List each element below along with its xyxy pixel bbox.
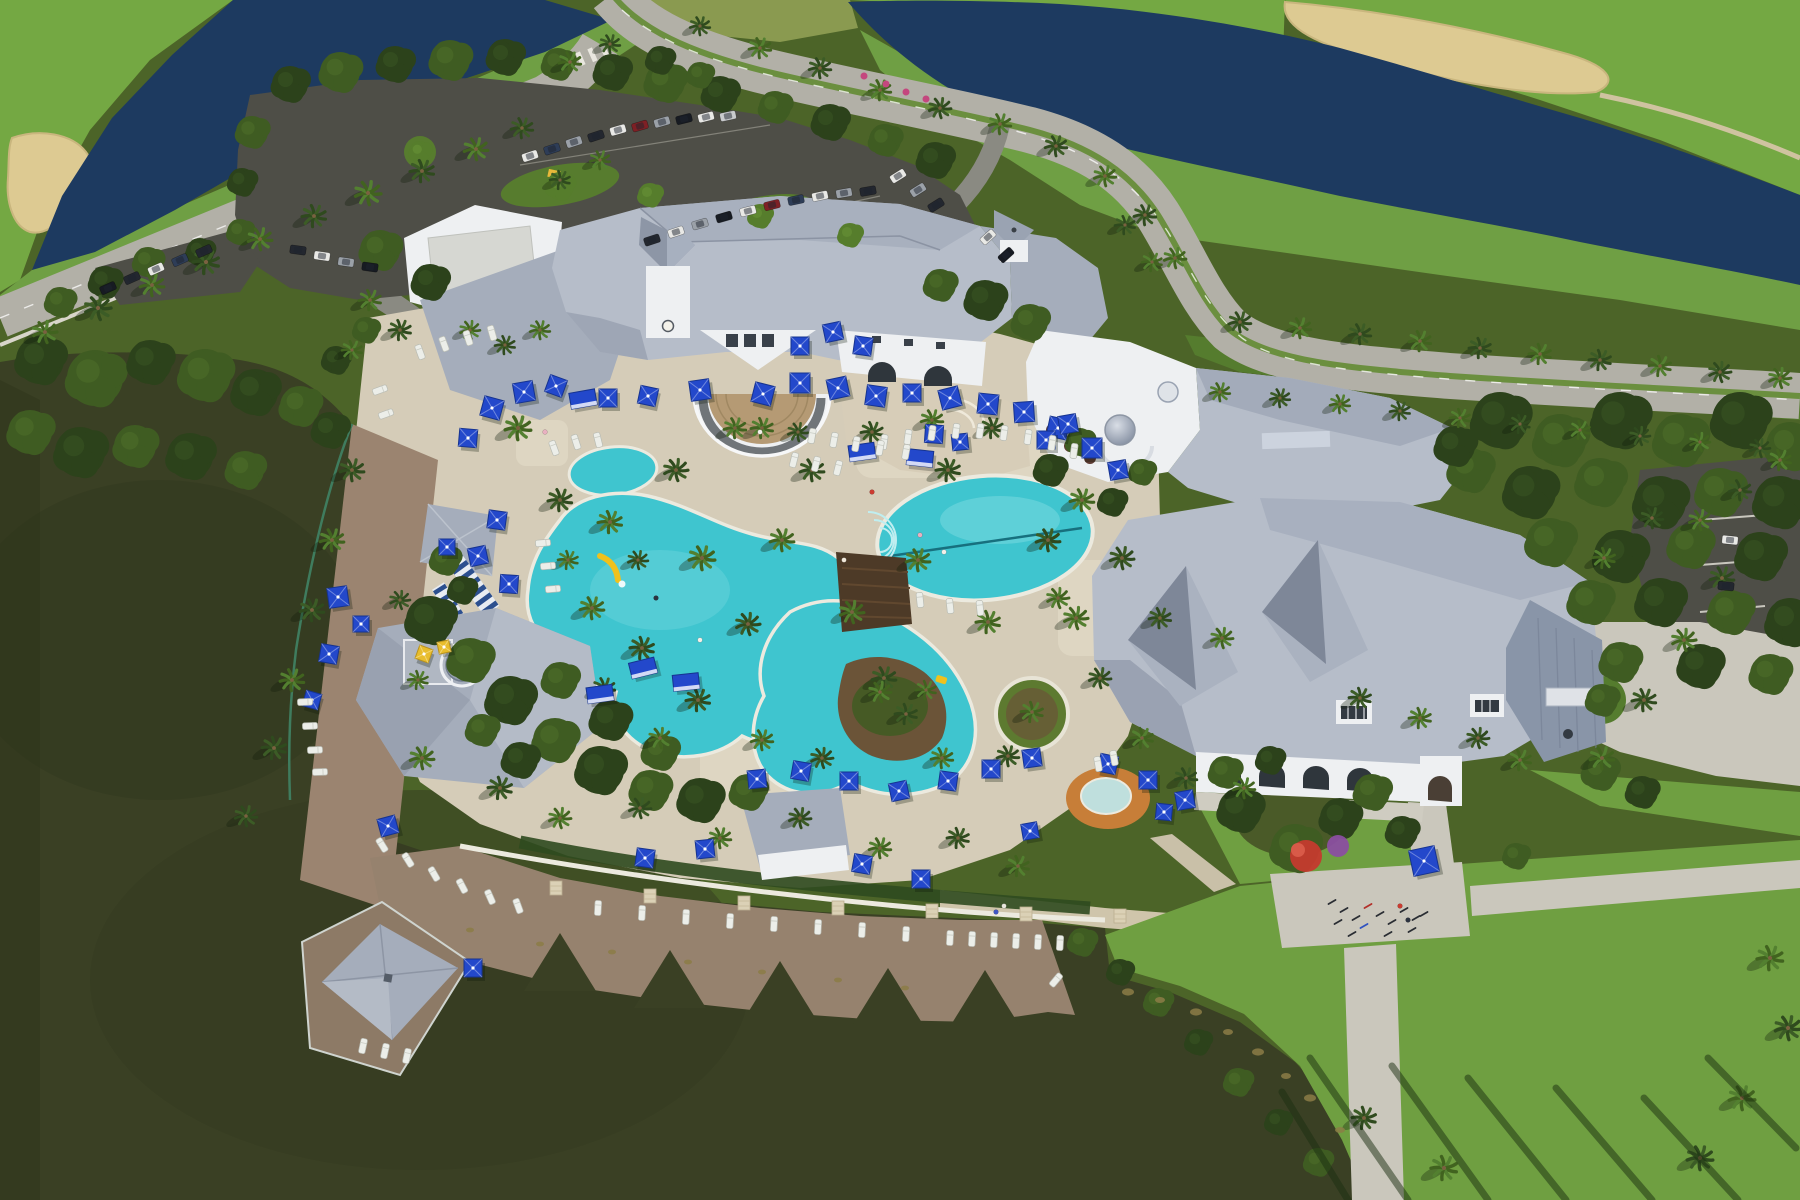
blue-umbrella <box>937 771 961 796</box>
canopy-highlight <box>1214 761 1227 774</box>
canopy-highlight <box>1607 649 1624 666</box>
canopy-highlight <box>842 227 852 237</box>
canopy-highlight <box>1584 466 1604 486</box>
shore-algae-patch <box>1223 1029 1233 1035</box>
shore-algae-patch <box>1155 997 1165 1003</box>
palm-crown <box>1278 396 1281 399</box>
blue-umbrella <box>499 574 521 597</box>
palm-crown <box>818 66 822 70</box>
canopy-highlight <box>1018 310 1033 325</box>
canopy-highlight <box>1073 933 1085 945</box>
umbrella-pole <box>1044 438 1047 441</box>
parked-car <box>337 257 354 268</box>
canopy-highlight <box>1774 430 1794 450</box>
canopy-highlight <box>24 344 44 364</box>
palm-crown <box>590 606 594 610</box>
canopy-highlight <box>94 271 107 284</box>
lounge-chair <box>302 722 317 729</box>
lounge-chair <box>312 768 327 775</box>
canopy-highlight <box>1757 661 1774 678</box>
blue-umbrella <box>636 385 661 411</box>
lounger-body <box>1012 933 1019 948</box>
parked-car <box>361 262 378 273</box>
canopy-highlight <box>1774 606 1794 626</box>
arched-window <box>1303 766 1329 790</box>
canopy-highlight <box>455 645 473 663</box>
canopy-highlight <box>1744 540 1764 560</box>
palm-crown <box>760 426 764 430</box>
canopy-highlight <box>437 47 454 64</box>
palm-crown <box>878 88 882 92</box>
lounger-body <box>307 746 322 753</box>
lounger-body <box>858 922 865 937</box>
canopy-highlight <box>685 785 703 803</box>
canopy-highlight <box>1133 463 1144 474</box>
canopy-highlight <box>540 725 558 743</box>
palm-crown <box>1158 616 1162 620</box>
umbrella-pole <box>919 877 922 880</box>
canopy-highlight <box>874 129 887 142</box>
palm-crown <box>566 558 569 561</box>
palm-crown <box>498 786 502 790</box>
lounger-body <box>545 585 561 593</box>
car-glass <box>294 246 303 253</box>
canopy-highlight <box>1391 821 1404 834</box>
lounge-chair <box>1012 933 1019 948</box>
palm-crown <box>416 678 419 681</box>
canopy-highlight <box>1643 485 1665 507</box>
palm-crown <box>1220 636 1224 640</box>
person <box>994 910 999 915</box>
cabana-canopy <box>906 449 937 472</box>
lounger-body <box>1034 934 1041 949</box>
palm-crown <box>568 60 572 64</box>
roof-dormer <box>1470 694 1504 717</box>
lattice-pillar <box>832 901 844 915</box>
palm-crown <box>1538 352 1542 356</box>
blue-umbrella <box>1139 771 1160 793</box>
palm-crown <box>674 468 678 472</box>
pillar-block <box>1020 907 1032 921</box>
lounge-chair <box>770 916 777 931</box>
lounger-body <box>976 600 984 616</box>
cupola-finial <box>1012 228 1017 233</box>
lounge-chair <box>1056 935 1063 950</box>
palm-crown <box>204 260 208 264</box>
canopy-highlight <box>1575 587 1593 605</box>
palm-crown <box>746 622 750 626</box>
canopy-highlight <box>764 96 777 109</box>
palm-crown <box>1030 710 1034 714</box>
canopy-highlight <box>1507 847 1518 858</box>
palm-crown <box>1418 339 1422 343</box>
lounge-chair <box>545 585 561 593</box>
palm-crown <box>398 328 402 332</box>
palm-crown <box>1602 556 1606 560</box>
lounge-chair <box>638 905 645 920</box>
palm-crown <box>1578 428 1581 431</box>
palm-crown <box>558 178 561 181</box>
lounger-body <box>946 930 953 945</box>
canopy-highlight <box>923 148 938 163</box>
palm-crown <box>796 430 799 433</box>
shore-algae-patch <box>1190 1008 1202 1015</box>
lattice-pillar <box>1114 909 1126 923</box>
canopy-highlight <box>453 581 465 593</box>
palm-crown <box>698 24 701 27</box>
parked-car <box>313 251 330 262</box>
lounger-body <box>814 919 821 934</box>
pillar-block <box>926 904 938 918</box>
canopy-highlight <box>418 270 433 285</box>
palm-crown <box>1123 223 1126 226</box>
canopy-highlight <box>175 441 194 460</box>
person <box>654 596 659 601</box>
canopy-highlight <box>548 668 563 683</box>
canopy-highlight <box>15 417 33 435</box>
aerial-scene-canvas <box>0 0 1800 1200</box>
canopy-highlight <box>642 187 652 197</box>
shore-algae-patch <box>608 950 616 955</box>
purple-flowering-tree <box>1327 835 1349 857</box>
palm-crown <box>368 298 372 302</box>
umbrella-pole <box>798 381 801 384</box>
canopy-highlight <box>367 237 384 254</box>
umbrella-pole <box>445 545 448 548</box>
palm-crown <box>780 538 784 542</box>
palm-crown <box>1658 364 1662 368</box>
roof-skylight <box>1262 431 1331 449</box>
palm-crown <box>1758 446 1761 449</box>
person <box>698 638 703 643</box>
lounger-body <box>638 905 645 920</box>
palm-crown <box>798 816 802 820</box>
dormer-window <box>936 342 945 349</box>
lounger-body <box>1056 935 1063 950</box>
canopy-highlight <box>1534 526 1554 546</box>
palm-crown <box>420 756 424 760</box>
lounger-body <box>312 768 327 775</box>
person <box>543 430 548 435</box>
canopy-highlight <box>135 347 153 365</box>
canopy-highlight <box>1685 651 1703 669</box>
palm-crown <box>1518 758 1522 762</box>
canopy-highlight <box>1675 531 1693 549</box>
person <box>1398 904 1403 909</box>
palm-crown <box>244 814 248 818</box>
canopy-highlight <box>63 435 84 456</box>
canopy-highlight <box>1721 401 1745 425</box>
canopy-highlight <box>278 72 293 87</box>
canopy-highlight <box>318 418 333 433</box>
lounge-chair <box>946 598 954 614</box>
pillar-block <box>1114 909 1126 923</box>
palm-crown <box>638 806 642 810</box>
palm-crown <box>1398 409 1401 412</box>
blue-umbrella <box>1082 438 1105 462</box>
palm-crown <box>658 736 662 740</box>
palm-crown <box>398 598 401 601</box>
shore-algae-patch <box>1281 1073 1291 1079</box>
palm-crown <box>258 237 262 241</box>
palm-crown <box>924 688 927 691</box>
canopy-highlight <box>121 432 139 450</box>
palm-crown <box>1458 416 1461 419</box>
palm-crown <box>1718 370 1722 374</box>
person <box>758 430 763 435</box>
lounger-body <box>770 916 777 931</box>
canopy-highlight <box>1631 781 1644 794</box>
blue-umbrella <box>977 393 1002 419</box>
canopy-highlight <box>1103 493 1115 505</box>
car-glass <box>1722 583 1731 590</box>
lounge-chair <box>916 592 924 608</box>
canopy-highlight <box>188 358 210 380</box>
palm-crown <box>272 746 276 750</box>
lounge-chair <box>540 562 556 570</box>
lounge-chair <box>968 931 975 946</box>
canopy-highlight <box>1327 805 1344 822</box>
blue-umbrella <box>318 644 343 669</box>
parked-car <box>289 245 306 256</box>
palm-crown <box>904 712 908 716</box>
canopy-highlight <box>1543 423 1565 445</box>
palm-crown <box>1074 616 1078 620</box>
umbrella-pole <box>910 391 913 394</box>
shore-algae-patch <box>1122 988 1134 995</box>
car-glass <box>366 263 375 270</box>
lattice-pillar <box>738 896 750 910</box>
palm-crown <box>350 348 353 351</box>
palm-crown <box>1358 696 1362 700</box>
person <box>1002 904 1007 909</box>
palm-crown <box>1080 498 1084 502</box>
person <box>1406 918 1411 923</box>
palm-crown <box>940 756 944 760</box>
lounge-chair <box>297 698 312 705</box>
umbrella-pole <box>1090 446 1093 449</box>
shore-algae-patch <box>1335 1127 1345 1133</box>
canopy-highlight <box>232 457 248 473</box>
palm-crown <box>850 610 854 614</box>
palm-crown <box>733 426 737 430</box>
palm-crown <box>1682 638 1686 642</box>
lattice-pillar <box>1020 907 1032 921</box>
palm-crown <box>420 169 424 173</box>
palm-crown <box>1120 556 1124 560</box>
canopy-highlight <box>471 719 484 732</box>
palm-crown <box>366 191 370 195</box>
palm-crown <box>538 328 541 331</box>
blue-umbrella <box>851 854 876 879</box>
entry-arch <box>1428 776 1452 802</box>
car-glass <box>1726 537 1735 544</box>
lounger-body <box>594 900 601 915</box>
palm-crown <box>350 468 354 472</box>
canopy-highlight <box>383 52 398 67</box>
palm-crown <box>1650 516 1654 520</box>
blue-umbrella <box>790 761 815 786</box>
palm-crown <box>608 42 611 45</box>
canopy-highlight <box>76 359 100 383</box>
palm-crown <box>1418 716 1422 720</box>
pillar-block <box>550 881 562 895</box>
canopy-highlight <box>1229 1073 1241 1085</box>
lounge-chair <box>858 922 865 937</box>
palm-crown <box>43 330 47 334</box>
umbrella-pole <box>471 966 474 969</box>
palm-crown <box>330 538 334 542</box>
canopy-highlight <box>240 377 259 396</box>
lounge-chair <box>535 539 551 547</box>
palm-crown <box>150 283 154 287</box>
palm-crown <box>986 620 990 624</box>
canopy-highlight <box>1591 689 1604 702</box>
palm-crown <box>96 306 100 310</box>
palm-crown <box>870 430 874 434</box>
pillar-block <box>832 901 844 915</box>
palm-crown <box>1006 754 1010 758</box>
lounger-body <box>540 562 556 570</box>
parked-car <box>1722 535 1739 545</box>
canopy-highlight <box>1763 485 1785 507</box>
palm-crown <box>558 498 562 502</box>
canopy-highlight <box>637 777 654 794</box>
gable-window <box>726 334 738 347</box>
palm-crown <box>1778 458 1782 462</box>
palm-crown <box>1642 698 1646 702</box>
palm-crown <box>608 520 612 524</box>
lounger-body <box>990 932 997 947</box>
palm-crown <box>990 426 994 430</box>
dormer-window <box>904 339 913 346</box>
palm-crown <box>1103 174 1107 178</box>
canopy-highlight <box>138 252 151 265</box>
palm-crown <box>1786 1026 1790 1030</box>
red-flowering-tree-highlight <box>1291 843 1305 857</box>
canopy-highlight <box>327 59 344 76</box>
canopy-highlight <box>1442 433 1459 450</box>
palm-crown <box>1054 144 1058 148</box>
lounger-body <box>946 598 954 614</box>
blue-umbrella <box>458 428 481 452</box>
pillar-block <box>738 896 750 910</box>
palm-crown <box>1056 596 1060 600</box>
palm-crown <box>956 836 960 840</box>
kiddie-pool <box>1081 778 1131 814</box>
lattice-pillar <box>644 889 656 903</box>
median-flower-bed <box>923 96 930 103</box>
palm-crown <box>820 756 824 760</box>
palm-crown <box>1238 320 1242 324</box>
canopy-highlight <box>1269 1113 1280 1124</box>
umbrella-pole <box>606 396 609 399</box>
canopy-highlight <box>494 684 514 704</box>
aerial-resort-photo <box>0 0 1800 1200</box>
palm-crown <box>1518 422 1521 425</box>
car-glass <box>342 258 351 265</box>
canopy-highlight <box>691 66 702 77</box>
umbrella-pole <box>798 344 801 347</box>
blue-umbrella <box>464 959 485 981</box>
pavilion-dome <box>1105 415 1135 445</box>
canopy-highlight <box>357 321 368 332</box>
lounger-body <box>297 698 312 705</box>
lounge-chair <box>976 600 984 616</box>
canopy-highlight <box>233 173 245 185</box>
palm-crown <box>1778 376 1782 380</box>
canopy-highlight <box>597 707 614 724</box>
lounger-body <box>535 539 551 547</box>
palm-crown <box>1098 676 1102 680</box>
dormer-window <box>1475 700 1499 712</box>
blue-umbrella <box>1409 845 1444 880</box>
palm-crown <box>1173 256 1177 260</box>
palm-crown <box>1698 518 1702 522</box>
lounger-body <box>302 722 317 729</box>
round-window <box>1563 729 1573 739</box>
palm-crown <box>310 608 314 612</box>
palm-crown <box>1698 440 1701 443</box>
gable-window <box>744 334 756 347</box>
canopy-highlight <box>972 287 989 304</box>
lounger-body <box>726 913 733 928</box>
palm-crown <box>1442 1166 1446 1170</box>
canopy-highlight <box>584 754 604 774</box>
canopy-highlight <box>1644 586 1664 606</box>
person <box>942 550 947 555</box>
canopy-highlight <box>1715 597 1733 615</box>
palm-crown <box>878 846 882 850</box>
canopy-highlight <box>929 274 942 287</box>
umbrella-pole <box>1146 778 1149 781</box>
palm-crown <box>1298 326 1302 330</box>
shore-algae-patch <box>684 960 692 965</box>
lounger-body <box>968 931 975 946</box>
palm-crown <box>1338 402 1341 405</box>
canopy-highlight <box>1261 751 1273 763</box>
blue-umbrella <box>864 385 890 412</box>
palm-crown <box>516 426 520 430</box>
blue-umbrella <box>634 848 658 873</box>
shore-algae-patch <box>834 978 842 983</box>
palm-crown <box>1358 332 1362 336</box>
canopy-highlight <box>287 393 304 410</box>
median-flower-bed <box>861 73 868 80</box>
palm-crown <box>998 122 1002 126</box>
gazebo-vent <box>383 973 392 982</box>
palm-crown <box>1016 864 1020 868</box>
lounge-chair <box>814 919 821 934</box>
canopy-highlight <box>1189 1033 1200 1044</box>
lounge-chair <box>682 909 689 924</box>
lounger-body <box>916 592 924 608</box>
palm-crown <box>1150 260 1153 263</box>
parked-car <box>1718 581 1735 591</box>
palm-crown <box>1720 576 1724 580</box>
palm-crown <box>1476 736 1480 740</box>
palm-crown <box>696 698 700 702</box>
lounge-chair <box>990 932 997 947</box>
blue-umbrella <box>982 760 1003 782</box>
car-glass <box>318 252 327 259</box>
palm-crown <box>598 158 601 161</box>
palm-crown <box>1218 390 1221 393</box>
canopy-highlight <box>413 145 422 154</box>
canopy-highlight <box>493 45 508 60</box>
palm-crown <box>1046 538 1050 542</box>
palm-crown <box>520 126 524 130</box>
